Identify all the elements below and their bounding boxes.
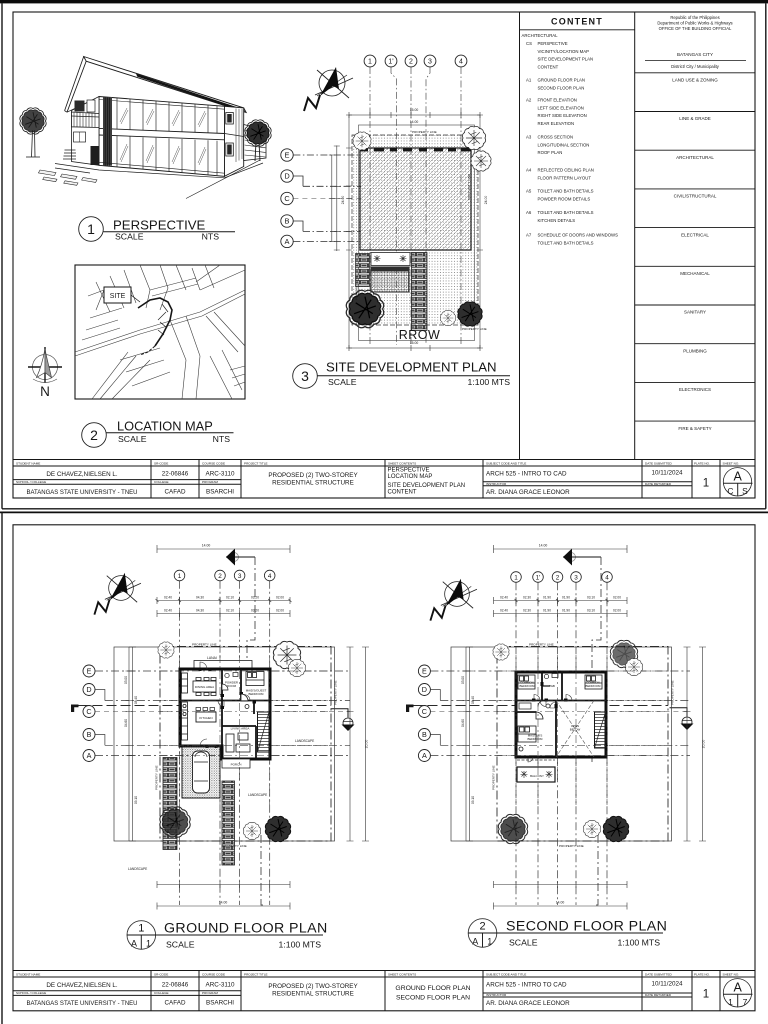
svg-text:PROPERTY LINE: PROPERTY LINE [412, 130, 437, 134]
svg-text:CS: CS [526, 41, 532, 46]
svg-text:A: A [131, 939, 137, 949]
svg-text:SECOND FLOOR PLAN: SECOND FLOOR PLAN [506, 919, 667, 935]
svg-text:C: C [727, 486, 733, 496]
svg-text:3: 3 [301, 368, 309, 384]
svg-text:DATE SUBMITTED: DATE SUBMITTED [645, 972, 673, 976]
svg-text:10/11/2024: 10/11/2024 [651, 470, 683, 477]
svg-text:PROPERTY LINE: PROPERTY LINE [462, 327, 487, 331]
svg-text:SCHEDULE OF DOORS AND WINDOWS: SCHEDULE OF DOORS AND WINDOWS [538, 233, 619, 238]
svg-text:1: 1 [514, 574, 518, 581]
svg-text:A: A [87, 751, 92, 760]
svg-text:C: C [86, 707, 91, 716]
svg-text:BATANGAS STATE UNIVERSITY - TN: BATANGAS STATE UNIVERSITY - TNEU [26, 1001, 137, 1007]
svg-text:AR. DIANA GRACE LEONOR: AR. DIANA GRACE LEONOR [486, 1000, 570, 1007]
svg-text:E: E [422, 667, 427, 676]
svg-text:SR-CODE: SR-CODE [154, 461, 168, 465]
svg-text:DATE SUBMITTED: DATE SUBMITTED [645, 461, 673, 465]
svg-text:KITCHEN DETAILS: KITCHEN DETAILS [538, 218, 576, 223]
svg-text:22-06846: 22-06846 [162, 982, 189, 989]
svg-text:SUBJECT CODE AND TITLE: SUBJECT CODE AND TITLE [486, 461, 526, 465]
svg-text:03.20: 03.20 [251, 609, 259, 613]
svg-text:SUBJECT CODE AND TITLE: SUBJECT CODE AND TITLE [486, 972, 526, 976]
svg-text:BATANGAS STATE UNIVERSITY - TN: BATANGAS STATE UNIVERSITY - TNEU [26, 490, 137, 496]
svg-text:SITE DEVELOPMENT PLAN: SITE DEVELOPMENT PLAN [388, 483, 466, 489]
svg-text:FLOOR PATTERN LAYOUT: FLOOR PATTERN LAYOUT [538, 175, 592, 180]
svg-text:LAND USE & ZONING: LAND USE & ZONING [672, 78, 718, 83]
svg-text:COLLEGE: COLLEGE [154, 991, 169, 995]
svg-text:CAFAD: CAFAD [165, 489, 186, 496]
svg-text:A7: A7 [526, 233, 532, 238]
svg-text:LANDSCAPE: LANDSCAPE [295, 739, 314, 743]
svg-text:PROGRAM: PROGRAM [202, 991, 218, 995]
svg-text:4: 4 [605, 574, 609, 581]
svg-text:A4: A4 [526, 168, 532, 173]
svg-text:S: S [742, 486, 748, 496]
svg-text:PROPERTY LINE: PROPERTY LINE [334, 680, 338, 705]
svg-text:SECOND FLOOR PLAN: SECOND FLOOR PLAN [396, 994, 470, 1001]
svg-text:D: D [422, 685, 427, 694]
svg-text:2: 2 [479, 921, 485, 933]
svg-text:MECHANICAL: MECHANICAL [680, 271, 710, 276]
svg-text:09.10: 09.10 [471, 796, 475, 804]
svg-text:BEDROOM: BEDROOM [586, 684, 602, 688]
svg-text:D: D [284, 172, 289, 181]
svg-text:08.40: 08.40 [134, 696, 138, 704]
svg-text:PERSPECTIVE: PERSPECTIVE [538, 41, 568, 46]
svg-text:ROOM: ROOM [227, 684, 237, 688]
svg-text:1: 1 [368, 59, 372, 66]
svg-text:LEFT SIDE ELEVATION: LEFT SIDE ELEVATION [538, 105, 584, 110]
svg-text:DATE RETURNED: DATE RETURNED [645, 482, 672, 486]
svg-text:CIVIL/STRUCTURAL: CIVIL/STRUCTURAL [674, 194, 717, 199]
svg-text:A2: A2 [526, 98, 532, 103]
svg-text:DE CHAVEZ,NIELSEN L.: DE CHAVEZ,NIELSEN L. [46, 471, 118, 478]
svg-text:LOCATION MAP: LOCATION MAP [388, 474, 433, 480]
svg-text:SCALE: SCALE [118, 434, 147, 444]
svg-text:T&B: T&B [549, 684, 555, 688]
svg-text:24.00: 24.00 [484, 196, 488, 205]
svg-text:02.40: 02.40 [500, 609, 508, 613]
svg-text:SITE DEVELOPMENT PLAN: SITE DEVELOPMENT PLAN [326, 360, 497, 375]
svg-text:LANAI: LANAI [207, 656, 217, 660]
svg-text:04.30: 04.30 [196, 596, 204, 600]
svg-text:02.00: 02.00 [613, 609, 621, 613]
svg-text:1: 1 [146, 939, 151, 949]
svg-text:4: 4 [268, 573, 272, 580]
svg-text:03.00: 03.00 [461, 676, 465, 684]
svg-text:SHEET CONTENTS: SHEET CONTENTS [388, 972, 416, 976]
svg-text:LANDSCAPE: LANDSCAPE [128, 867, 147, 871]
svg-text:RESIDENTIAL STRUCTURE: RESIDENTIAL STRUCTURE [272, 991, 354, 998]
svg-text:GROUND FLOOR PLAN: GROUND FLOOR PLAN [164, 921, 328, 937]
svg-text:1: 1 [87, 221, 95, 237]
svg-text:SCALE: SCALE [166, 940, 195, 950]
svg-text:BSARCHI: BSARCHI [206, 489, 234, 496]
svg-text:PROPERTY LINE: PROPERTY LINE [192, 642, 217, 646]
svg-text:02.10: 02.10 [226, 596, 234, 600]
svg-text:02.40: 02.40 [164, 596, 172, 600]
svg-text:1': 1' [536, 574, 541, 581]
svg-text:03.10: 03.10 [587, 609, 595, 613]
svg-text:E: E [285, 151, 290, 160]
svg-text:1:100 MTS: 1:100 MTS [468, 377, 511, 387]
svg-text:B: B [87, 730, 92, 739]
svg-text:PROPOSED (2) TWO-STOREY: PROPOSED (2) TWO-STOREY [268, 472, 358, 479]
svg-text:PROPERTY LINE: PROPERTY LINE [559, 844, 584, 848]
svg-text:B: B [422, 730, 427, 739]
svg-text:NTS: NTS [213, 434, 231, 444]
svg-text:A5: A5 [526, 189, 532, 194]
svg-text:02.00: 02.00 [276, 609, 284, 613]
svg-text:1:100 MTS: 1:100 MTS [279, 940, 322, 950]
svg-text:02.30: 02.30 [523, 596, 531, 600]
svg-text:POWDER ROOM DETAILS: POWDER ROOM DETAILS [538, 196, 591, 201]
svg-text:PROGRAM: PROGRAM [202, 480, 218, 484]
svg-text:04.60: 04.60 [124, 719, 128, 727]
svg-text:3: 3 [428, 59, 432, 66]
svg-text:FIRE & SAFETY: FIRE & SAFETY [678, 426, 711, 431]
svg-text:09.10: 09.10 [134, 796, 138, 804]
svg-text:FRONT ELEVATION: FRONT ELEVATION [538, 98, 577, 103]
svg-text:PERSPECTIVE: PERSPECTIVE [113, 218, 206, 233]
svg-text:SCHOOL / COLLEGE: SCHOOL / COLLEGE [16, 480, 46, 484]
svg-text:CROSS SECTION: CROSS SECTION [538, 135, 574, 140]
svg-text:PROJECT TITLE: PROJECT TITLE [244, 972, 268, 976]
svg-text:BALCONY: BALCONY [530, 774, 544, 778]
svg-text:CAFAD: CAFAD [165, 1000, 186, 1007]
svg-text:2: 2 [409, 59, 413, 66]
svg-text:TOILET AND BATH DETAILS: TOILET AND BATH DETAILS [538, 240, 594, 245]
svg-text:PROPERTY LINE: PROPERTY LINE [492, 765, 496, 790]
svg-text:1: 1 [703, 989, 709, 1001]
svg-text:LINE & GRADE: LINE & GRADE [679, 116, 711, 121]
svg-text:DATE RETURNED: DATE RETURNED [645, 993, 672, 997]
svg-text:C: C [422, 707, 427, 716]
svg-text:01.90: 01.90 [543, 609, 551, 613]
svg-text:LONGITUDINAL SECTION: LONGITUDINAL SECTION [538, 142, 590, 147]
svg-text:D: D [86, 685, 91, 694]
svg-text:01.90: 01.90 [562, 609, 570, 613]
svg-text:PLATE NO.: PLATE NO. [694, 972, 710, 976]
svg-text:7: 7 [743, 997, 748, 1007]
svg-text:02.10: 02.10 [226, 609, 234, 613]
svg-text:3: 3 [574, 574, 578, 581]
svg-text:Department of Public Works & H: Department of Public Works & Highways [657, 21, 732, 26]
svg-text:2: 2 [218, 573, 222, 580]
svg-text:ROOF PLAN: ROOF PLAN [538, 150, 563, 155]
svg-text:TOILET AND BATH DETAILS: TOILET AND BATH DETAILS [538, 189, 594, 194]
svg-text:20.00: 20.00 [702, 740, 706, 749]
svg-text:B: B [285, 217, 290, 226]
svg-text:1': 1' [388, 59, 393, 66]
svg-text:BEDROOM: BEDROOM [528, 737, 544, 741]
svg-text:AR. DIANA GRACE LEONOR: AR. DIANA GRACE LEONOR [486, 489, 570, 496]
svg-text:ARCH 525 - INTRO TO CAD: ARCH 525 - INTRO TO CAD [486, 982, 567, 989]
svg-text:BATANGAS CITY: BATANGAS CITY [677, 52, 713, 57]
svg-text:A1: A1 [526, 78, 532, 83]
svg-text:2: 2 [90, 427, 98, 443]
svg-text:14.00: 14.00 [539, 544, 548, 548]
svg-text:1: 1 [487, 937, 492, 947]
svg-text:COURSE CODE: COURSE CODE [202, 461, 225, 465]
svg-text:PERSPECTIVE: PERSPECTIVE [388, 468, 430, 474]
svg-text:A6: A6 [526, 210, 532, 215]
svg-text:SR-CODE: SR-CODE [154, 972, 168, 976]
svg-text:COLLEGE: COLLEGE [154, 480, 169, 484]
svg-text:20.00: 20.00 [365, 740, 369, 749]
svg-text:Republic of the Philippines: Republic of the Philippines [670, 15, 719, 20]
svg-text:03.10: 03.10 [587, 596, 595, 600]
svg-text:SECOND FLOOR PLAN: SECOND FLOOR PLAN [538, 85, 585, 90]
svg-text:02.40: 02.40 [164, 609, 172, 613]
svg-text:3: 3 [238, 573, 242, 580]
svg-text:PROPERTY LINE: PROPERTY LINE [671, 680, 675, 705]
svg-text:PLATE NO.: PLATE NO. [694, 461, 710, 465]
svg-text:SCHOOL / COLLEGE: SCHOOL / COLLEGE [16, 991, 46, 995]
svg-text:KITCHEN: KITCHEN [199, 716, 212, 720]
svg-text:E: E [87, 667, 92, 676]
svg-text:GROUND FLOOR PLAN: GROUND FLOOR PLAN [538, 78, 586, 83]
svg-text:24.00: 24.00 [341, 196, 345, 205]
svg-text:03.00: 03.00 [124, 676, 128, 684]
svg-text:A: A [285, 237, 290, 246]
svg-text:N: N [40, 384, 50, 399]
svg-text:INSTRUCTOR: INSTRUCTOR [486, 482, 507, 486]
svg-text:01.90: 01.90 [543, 596, 551, 600]
svg-text:SITE: SITE [110, 293, 126, 300]
svg-text:SCALE: SCALE [509, 938, 538, 948]
svg-text:RESIDENTIAL STRUCTURE: RESIDENTIAL STRUCTURE [272, 480, 354, 487]
svg-text:COURSE CODE: COURSE CODE [202, 972, 225, 976]
svg-text:1: 1 [178, 573, 182, 580]
svg-text:CONTENT: CONTENT [538, 64, 559, 69]
svg-text:15.00: 15.00 [410, 108, 419, 112]
svg-text:SHEET CONTENTS: SHEET CONTENTS [388, 461, 416, 465]
svg-text:08.40: 08.40 [471, 696, 475, 704]
svg-text:SHEET NO.: SHEET NO. [723, 972, 740, 976]
svg-text:STUDENT NAME: STUDENT NAME [16, 972, 40, 976]
svg-text:BSARCHI: BSARCHI [206, 1000, 234, 1007]
svg-text:SITE DEVELOPMENT PLAN: SITE DEVELOPMENT PLAN [538, 57, 594, 62]
svg-text:RROW: RROW [399, 328, 441, 342]
svg-text:ARCH 525 - INTRO TO CAD: ARCH 525 - INTRO TO CAD [486, 471, 567, 478]
svg-text:ARCHITECTURAL: ARCHITECTURAL [676, 155, 714, 160]
svg-text:NTS: NTS [202, 232, 220, 242]
svg-text:INSTRUCTOR: INSTRUCTOR [486, 993, 507, 997]
svg-text:DINING AREA: DINING AREA [195, 685, 214, 689]
svg-text:BEDROOM: BEDROOM [249, 692, 265, 696]
svg-text:PLUMBING: PLUMBING [683, 348, 707, 353]
svg-text:TOILET AND BATH DETAILS: TOILET AND BATH DETAILS [538, 210, 594, 215]
svg-text:A: A [472, 937, 478, 947]
svg-text:OFFICE OF THE BUILDING OFFICIA: OFFICE OF THE BUILDING OFFICIAL [659, 26, 732, 31]
svg-text:04.60: 04.60 [461, 719, 465, 727]
svg-text:22-06846: 22-06846 [162, 471, 189, 478]
svg-text:1: 1 [138, 923, 144, 935]
svg-text:10/11/2024: 10/11/2024 [651, 981, 683, 988]
svg-text:PROPERTY LINE: PROPERTY LINE [529, 642, 554, 646]
svg-text:02.00: 02.00 [276, 596, 284, 600]
svg-text:A3: A3 [526, 135, 532, 140]
svg-text:01.90: 01.90 [562, 596, 570, 600]
svg-text:1: 1 [728, 997, 733, 1007]
svg-text:2: 2 [556, 574, 560, 581]
svg-text:SCALE: SCALE [328, 377, 357, 387]
svg-text:CONTENT: CONTENT [388, 489, 417, 495]
svg-text:04.30: 04.30 [196, 609, 204, 613]
svg-text:GROUND FLOOR PLAN: GROUND FLOOR PLAN [395, 985, 470, 992]
svg-text:ELECTRONICS: ELECTRONICS [679, 387, 711, 392]
svg-text:02.30: 02.30 [523, 609, 531, 613]
svg-text:LOCATION MAP: LOCATION MAP [117, 419, 213, 434]
svg-text:02.00: 02.00 [613, 596, 621, 600]
svg-text:03.20: 03.20 [251, 596, 259, 600]
svg-text:ELECTRICAL: ELECTRICAL [681, 232, 709, 237]
svg-text:PROPERTY LINE: PROPERTY LINE [155, 765, 159, 790]
svg-text:02.40: 02.40 [500, 596, 508, 600]
svg-text:14.00: 14.00 [410, 120, 419, 124]
svg-text:ARCHITECTURAL: ARCHITECTURAL [522, 33, 559, 38]
svg-text:RIGHT SIDE ELEVATION: RIGHT SIDE ELEVATION [538, 113, 587, 118]
svg-text:District/ City / Municipality: District/ City / Municipality [671, 64, 720, 69]
svg-text:PROPOSED (2) TWO-STOREY: PROPOSED (2) TWO-STOREY [268, 983, 358, 990]
svg-text:REFLECTED CEILING PLAN: REFLECTED CEILING PLAN [538, 168, 594, 173]
svg-text:SANITARY: SANITARY [684, 310, 706, 315]
svg-text:C: C [284, 194, 290, 203]
svg-text:14.00: 14.00 [556, 901, 565, 905]
svg-text:PROJECT TITLE: PROJECT TITLE [244, 461, 268, 465]
svg-text:BELOW: BELOW [570, 728, 581, 732]
svg-text:A: A [734, 981, 743, 995]
svg-text:LANDSCAPE: LANDSCAPE [248, 793, 267, 797]
svg-text:DE CHAVEZ,NIELSEN L.: DE CHAVEZ,NIELSEN L. [46, 982, 118, 989]
svg-text:BEDROOM: BEDROOM [520, 684, 536, 688]
svg-text:REAR ELEVATION: REAR ELEVATION [538, 121, 575, 126]
svg-text:14.00: 14.00 [219, 901, 228, 905]
svg-text:SHEET NO.: SHEET NO. [723, 461, 740, 465]
svg-text:SCALE: SCALE [115, 232, 144, 242]
svg-text:VICINITY/LOCATION MAP: VICINITY/LOCATION MAP [538, 49, 590, 54]
svg-text:4: 4 [459, 59, 463, 66]
svg-text:A: A [734, 470, 743, 484]
svg-text:PROPERTY LINE: PROPERTY LINE [355, 275, 359, 300]
svg-text:CONTENT: CONTENT [551, 17, 603, 27]
svg-text:ARC-3110: ARC-3110 [206, 982, 235, 989]
svg-text:14.00: 14.00 [202, 544, 211, 548]
svg-text:1:100 MTS: 1:100 MTS [618, 938, 661, 948]
svg-text:PROP ERT Y LINE: PROP ERT Y LINE [467, 174, 471, 200]
svg-text:ARC-3110: ARC-3110 [206, 471, 235, 478]
svg-text:LIVING AREA: LIVING AREA [231, 727, 250, 731]
svg-text:1: 1 [703, 478, 709, 490]
svg-text:STUDENT NAME: STUDENT NAME [16, 461, 40, 465]
svg-text:A: A [422, 751, 427, 760]
